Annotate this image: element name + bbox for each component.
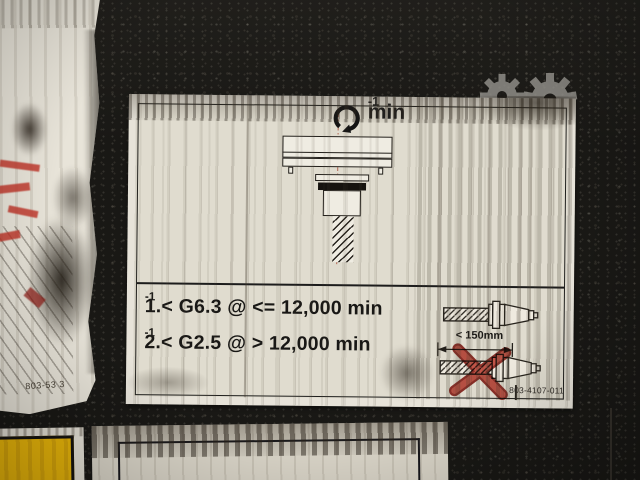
bottom-label-partial xyxy=(92,422,449,480)
speed-unit-label: min-1 xyxy=(368,101,379,126)
red-print-remnant xyxy=(0,160,40,172)
grime-smudge xyxy=(11,102,47,156)
main-label-part-number: 803-4107-011 xyxy=(488,385,564,396)
grime-streaks xyxy=(92,422,448,458)
spindle-housing-base xyxy=(282,158,392,168)
machine-labels-photo: 803-53 3 min-1 1.< G6.3 @ <= 12,000 min-… xyxy=(0,0,640,480)
collet-chuck-drawing xyxy=(323,190,361,216)
surface-seam-line xyxy=(610,408,612,480)
yellow-label-field xyxy=(0,435,74,480)
tool-shank-hatched xyxy=(332,216,353,262)
dimension-150mm-label: < 150mm xyxy=(439,329,519,342)
spindle-foot xyxy=(378,168,383,175)
yellow-label-partial xyxy=(0,427,84,480)
speed-rule-1: 1.< G6.3 @ <= 12,000 min-1 xyxy=(145,295,156,319)
spindle-housing-drawing xyxy=(282,136,392,159)
speed-rule-2: 2.< G2.5 @ > 12,000 min-1 xyxy=(144,331,155,355)
unit-exponent: -1 xyxy=(368,95,379,109)
grime-streaks xyxy=(0,427,84,438)
red-print-remnant xyxy=(8,205,39,218)
rotation-arrow-icon xyxy=(329,101,365,135)
short-tool-holder-icon xyxy=(443,297,543,332)
grime-streaks xyxy=(0,0,107,28)
red-print-remnant xyxy=(0,182,30,194)
spindle-foot xyxy=(288,167,293,174)
oring-band xyxy=(318,181,366,191)
spindle-speed-label: min-1 1.< G6.3 @ <= 12,000 min-1 2.< G2.… xyxy=(126,94,576,409)
hatch-print-remnant xyxy=(0,226,73,395)
